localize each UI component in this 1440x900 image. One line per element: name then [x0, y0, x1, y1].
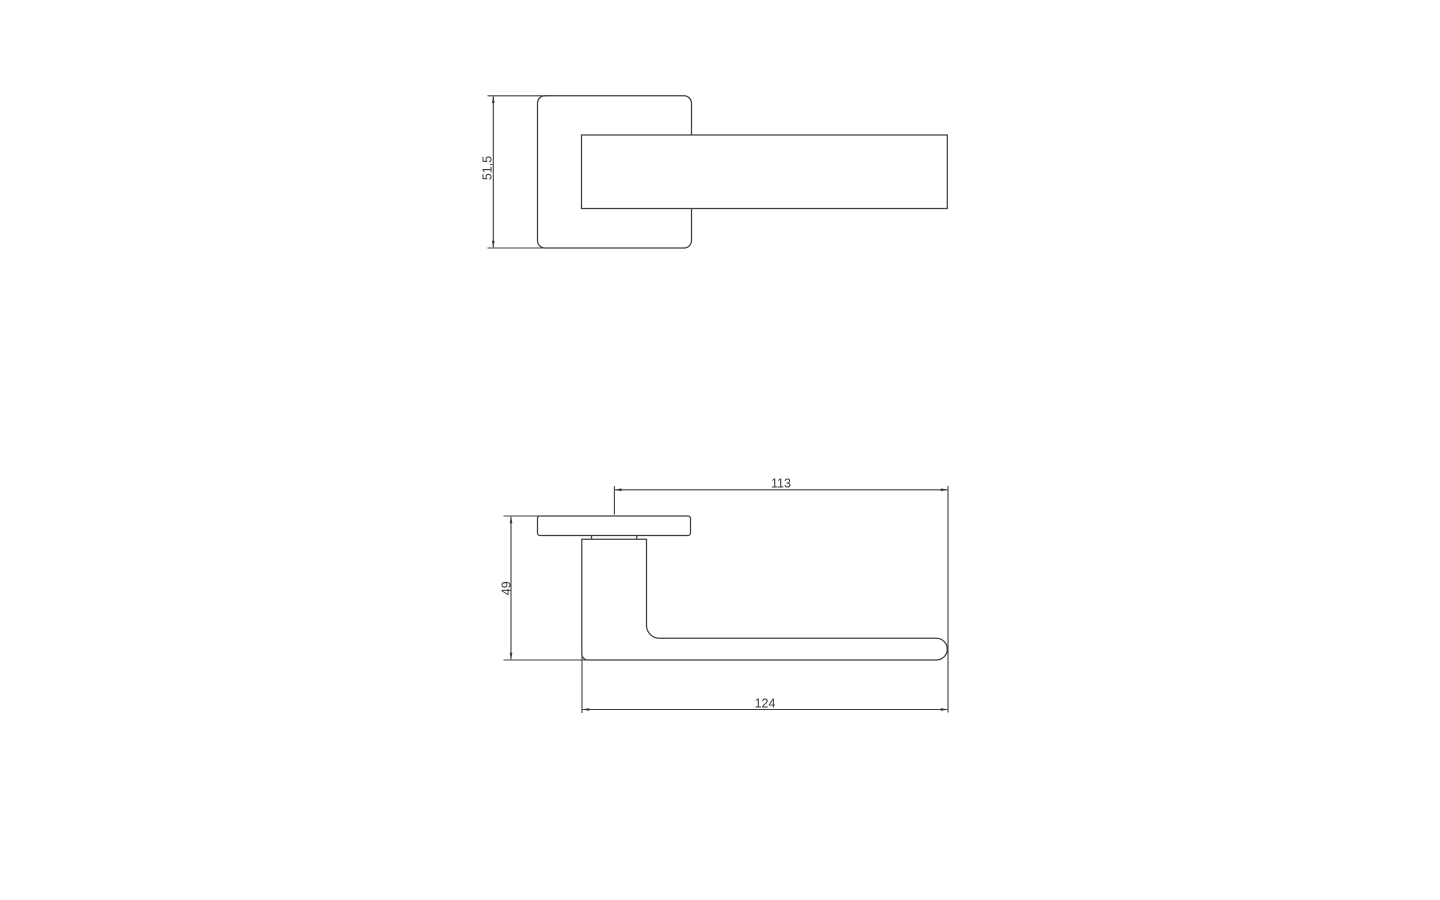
svg-text:124: 124 — [755, 697, 776, 711]
svg-text:51,5: 51,5 — [481, 156, 495, 180]
svg-text:49: 49 — [499, 581, 513, 595]
svg-text:113: 113 — [771, 477, 791, 491]
